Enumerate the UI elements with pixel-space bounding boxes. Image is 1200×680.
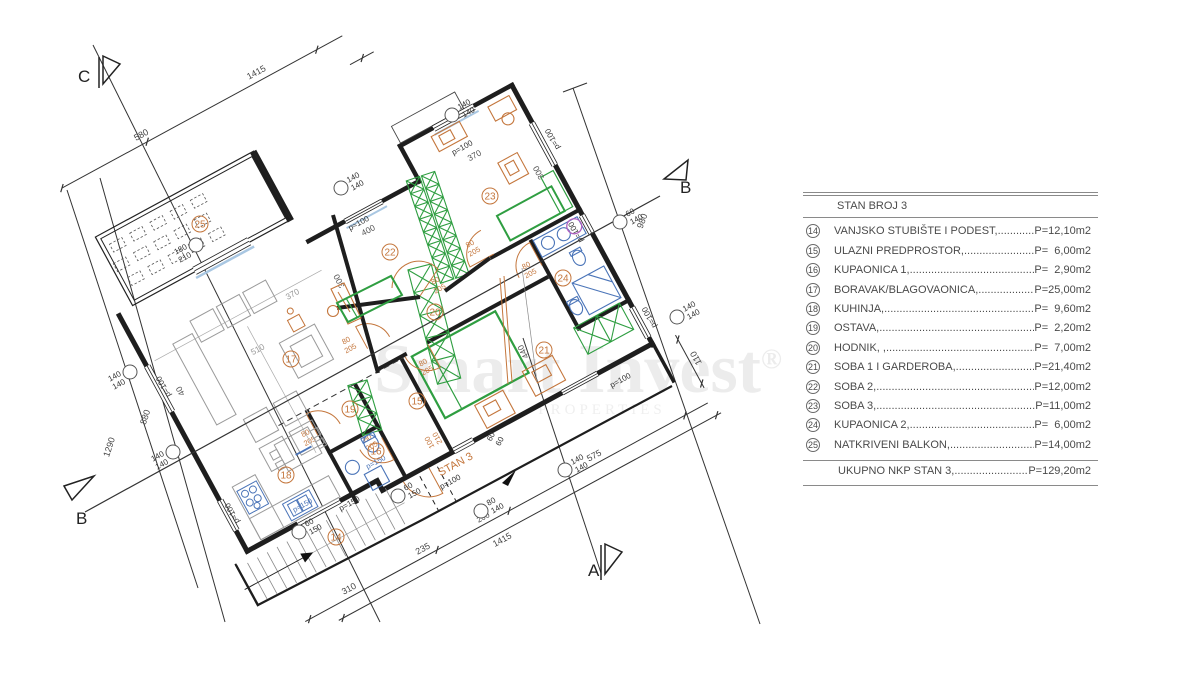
svg-text:18: 18 [280,471,292,482]
svg-text:17: 17 [285,355,297,366]
svg-text:24: 24 [557,274,569,285]
svg-text:C: C [78,67,90,86]
svg-text:16: 16 [370,447,382,458]
svg-text:25: 25 [194,220,206,231]
svg-text:19: 19 [344,405,356,416]
svg-text:14: 14 [330,533,342,544]
svg-text:B: B [680,178,691,197]
svg-text:23: 23 [484,192,496,203]
svg-text:B: B [76,509,87,528]
svg-text:22: 22 [384,248,396,259]
svg-text:A: A [588,561,600,580]
svg-text:PROPERTIES: PROPERTIES [538,402,665,418]
svg-text:20: 20 [429,308,441,319]
svg-text:15: 15 [411,397,423,408]
svg-text:21: 21 [538,346,550,357]
